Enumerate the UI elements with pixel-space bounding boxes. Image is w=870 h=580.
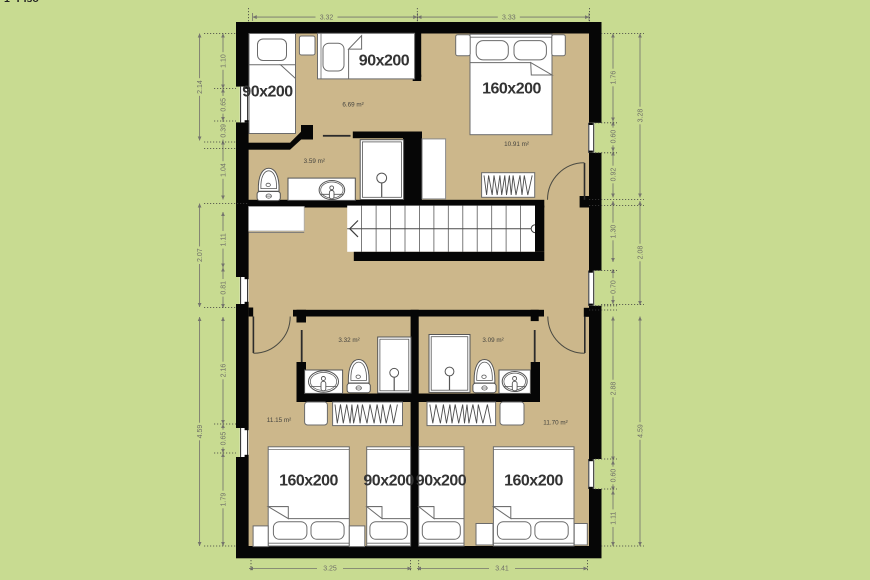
svg-text:4.59: 4.59 — [197, 425, 204, 439]
svg-text:10.91 m²: 10.91 m² — [504, 141, 529, 148]
svg-text:3.28: 3.28 — [638, 109, 645, 123]
svg-text:1.76: 1.76 — [611, 71, 618, 85]
svg-text:0.65: 0.65 — [221, 432, 228, 446]
svg-text:2.08: 2.08 — [638, 246, 645, 260]
svg-text:90x200: 90x200 — [242, 84, 293, 101]
svg-text:90x200: 90x200 — [416, 473, 467, 490]
svg-text:4.59: 4.59 — [638, 424, 645, 438]
svg-text:2.14: 2.14 — [197, 80, 204, 94]
svg-text:160x200: 160x200 — [504, 473, 563, 490]
svg-text:0.70: 0.70 — [611, 280, 618, 294]
svg-text:1.11: 1.11 — [611, 512, 618, 525]
svg-text:3.25: 3.25 — [323, 566, 337, 573]
svg-text:3.41: 3.41 — [495, 566, 509, 573]
svg-text:1.11: 1.11 — [221, 233, 228, 246]
svg-text:2.88: 2.88 — [611, 382, 618, 396]
svg-text:1.79: 1.79 — [221, 493, 228, 507]
svg-text:3.33: 3.33 — [502, 15, 516, 22]
svg-text:1.30: 1.30 — [611, 225, 618, 239]
svg-text:90x200: 90x200 — [359, 53, 410, 70]
svg-text:1.10: 1.10 — [221, 54, 228, 68]
svg-text:0.60: 0.60 — [611, 469, 618, 483]
svg-text:2.07: 2.07 — [197, 248, 204, 262]
svg-text:6.69 m²: 6.69 m² — [342, 102, 363, 109]
svg-text:0.92: 0.92 — [611, 168, 618, 182]
svg-text:160x200: 160x200 — [482, 81, 541, 98]
svg-text:0.60: 0.60 — [611, 130, 618, 144]
svg-text:0.39: 0.39 — [221, 124, 228, 138]
svg-text:3.32: 3.32 — [320, 15, 334, 22]
svg-text:2.16: 2.16 — [221, 364, 228, 378]
svg-text:160x200: 160x200 — [279, 473, 338, 490]
svg-text:0.65: 0.65 — [221, 98, 228, 112]
svg-text:3.09 m²: 3.09 m² — [482, 337, 503, 344]
svg-text:11.15 m²: 11.15 m² — [267, 417, 291, 424]
svg-text:11.70 m²: 11.70 m² — [543, 420, 567, 427]
svg-text:1.04: 1.04 — [221, 163, 228, 177]
svg-text:0.81: 0.81 — [221, 281, 228, 295]
svg-text:1º Piso: 1º Piso — [4, 0, 39, 5]
svg-text:3.32 m²: 3.32 m² — [338, 337, 359, 344]
svg-text:90x200: 90x200 — [363, 473, 414, 490]
svg-text:3.59 m²: 3.59 m² — [304, 158, 325, 165]
